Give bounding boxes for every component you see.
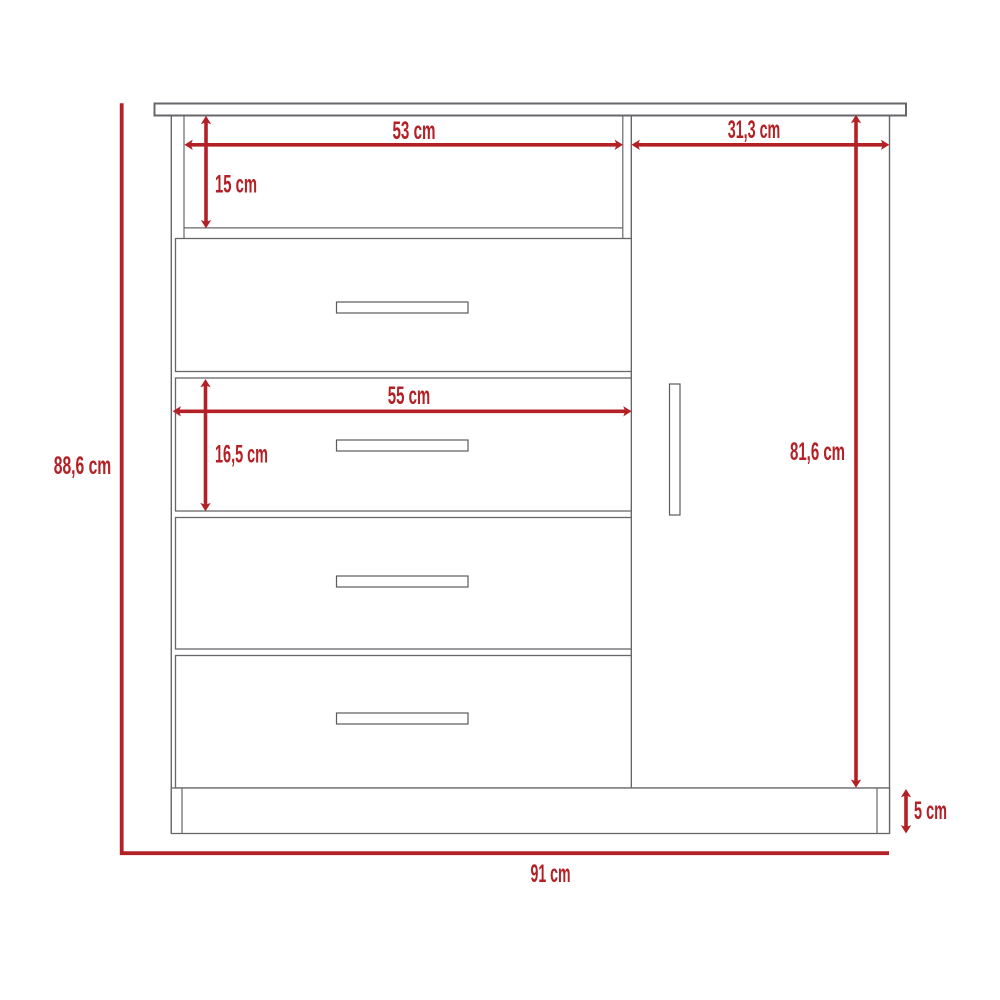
svg-text:5 cm: 5 cm [914, 797, 947, 825]
svg-text:15 cm: 15 cm [215, 171, 257, 199]
svg-text:16,5 cm: 16,5 cm [215, 441, 268, 469]
svg-text:53 cm: 53 cm [393, 117, 436, 145]
svg-text:55 cm: 55 cm [388, 382, 431, 410]
svg-text:81,6 cm: 81,6 cm [790, 438, 845, 466]
svg-text:31,3 cm: 31,3 cm [728, 116, 781, 144]
svg-text:88,6 cm: 88,6 cm [54, 452, 112, 480]
svg-text:91 cm: 91 cm [531, 860, 571, 888]
